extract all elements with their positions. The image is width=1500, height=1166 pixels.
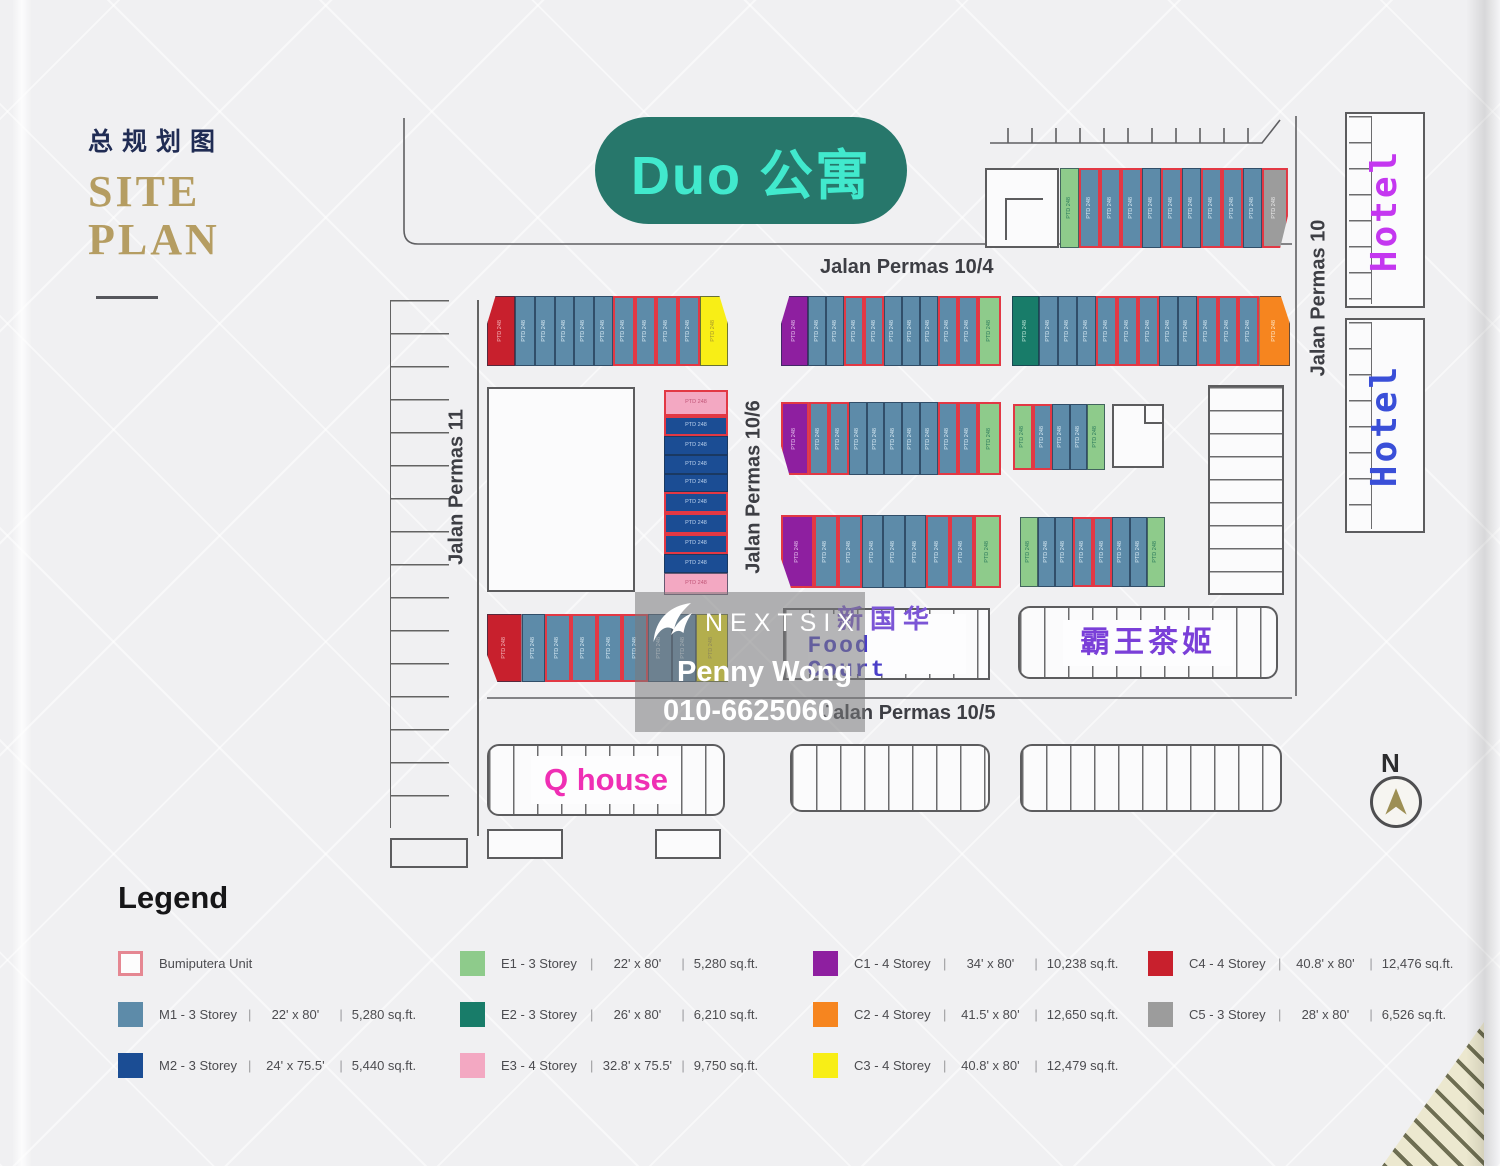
lot-ptd-label: PTD 248 bbox=[1093, 426, 1099, 448]
lot-M1-bumiputera: PTD 248 bbox=[1218, 296, 1239, 366]
legend-swatch-c4 bbox=[1148, 951, 1173, 976]
lot-ptd-label: PTD 248 bbox=[870, 541, 876, 563]
lot-ptd-label: PTD 248 bbox=[1065, 320, 1071, 342]
lot-ptd-label: PTD 248 bbox=[1076, 426, 1082, 448]
lot-ptd-label: PTD 248 bbox=[685, 581, 707, 587]
legend-item-bumi: Bumiputera Unit bbox=[118, 950, 416, 977]
legend-label: C5 - 3 Storey bbox=[1189, 1007, 1269, 1022]
lot-M1-bumiputera: PTD 248 bbox=[838, 515, 862, 588]
lot-block-col-10-6: PTD 248PTD 248PTD 248PTD 248PTD 248PTD 2… bbox=[664, 390, 728, 595]
lot-ptd-label: PTD 248 bbox=[581, 637, 587, 659]
lot-M1-bumiputera: PTD 248 bbox=[1161, 168, 1182, 248]
lot-ptd-label: PTD 248 bbox=[1040, 426, 1046, 448]
lot-ptd-label: PTD 248 bbox=[1080, 541, 1086, 563]
legend-size: 24' x 75.5' bbox=[260, 1058, 330, 1073]
lot-E1: PTD 248 bbox=[1087, 404, 1105, 470]
legend-item-e2: E2 - 3 Storey|26' x 80'|6,210 sq.ft. bbox=[460, 1001, 758, 1028]
legend-label: C2 - 4 Storey bbox=[854, 1007, 934, 1022]
lot-M1: PTD 248 bbox=[1159, 296, 1178, 366]
parking-structure bbox=[1208, 385, 1284, 595]
hotel-building-bottom: Hotel bbox=[1345, 318, 1425, 533]
legend-size: 22' x 80' bbox=[602, 956, 672, 971]
legend-separator: | bbox=[943, 1058, 946, 1073]
lot-M1: PTD 248 bbox=[883, 515, 905, 588]
legend-label: M1 - 3 Storey bbox=[159, 1007, 239, 1022]
legend-area: 12,476 sq.ft. bbox=[1382, 956, 1454, 971]
lot-ptd-label: PTD 248 bbox=[685, 423, 707, 429]
legend-separator: | bbox=[943, 956, 946, 971]
lot-ptd-label: PTD 248 bbox=[891, 428, 897, 450]
legend-item-m1: M1 - 3 Storey|22' x 80'|5,280 sq.ft. bbox=[118, 1001, 416, 1028]
tea-shop-name: 霸王茶姬 bbox=[1080, 627, 1216, 659]
legend-separator: | bbox=[681, 956, 684, 971]
legend-area: 6,210 sq.ft. bbox=[694, 1007, 758, 1022]
legend-heading: Legend bbox=[118, 880, 228, 916]
lot-M1: PTD 248 bbox=[902, 296, 920, 366]
legend-separator: | bbox=[590, 1058, 593, 1073]
lot-M1: PTD 248 bbox=[1052, 404, 1070, 470]
watermark-phone: 010-6625060 bbox=[663, 695, 865, 728]
compass-icon bbox=[1370, 776, 1422, 828]
lot-ptd-label: PTD 248 bbox=[1166, 320, 1172, 342]
lot-C3: PTD 248 bbox=[700, 296, 728, 366]
lot-ptd-label: PTD 248 bbox=[581, 320, 587, 342]
legend-swatch-m2 bbox=[118, 1053, 143, 1078]
legend-column-4: C4 - 4 Storey|40.8' x 80'|12,476 sq.ft.C… bbox=[1148, 950, 1453, 1028]
legend-label: E3 - 4 Storey bbox=[501, 1058, 581, 1073]
hotel-building-top: Hotel bbox=[1345, 112, 1425, 308]
lot-ptd-label: PTD 248 bbox=[1189, 197, 1195, 219]
q-house-building: Q house bbox=[487, 744, 725, 816]
lot-ptd-label: PTD 248 bbox=[908, 428, 914, 450]
watermark-agent-name: Penny Wong bbox=[677, 656, 865, 689]
legend-separator: | bbox=[590, 956, 593, 971]
legend-separator: | bbox=[248, 1058, 251, 1073]
lot-ptd-label: PTD 248 bbox=[1104, 320, 1110, 342]
legend-label: E2 - 3 Storey bbox=[501, 1007, 581, 1022]
lot-ptd-label: PTD 248 bbox=[1044, 541, 1050, 563]
lot-ptd-label: PTD 248 bbox=[926, 320, 932, 342]
lot-M1-bumiputera: PTD 248 bbox=[864, 296, 884, 366]
legend-size: 26' x 80' bbox=[602, 1007, 672, 1022]
lot-M1: PTD 248 bbox=[1055, 517, 1073, 587]
parking-stalls-jalan-permas-11 bbox=[390, 300, 449, 828]
lot-M1-bumiputera: PTD 248 bbox=[613, 296, 635, 366]
lot-M1: PTD 248 bbox=[1112, 517, 1130, 587]
site-plan-canvas: 总规划图 SITE PLAN Duo 公寓 新国华 Food Court 霸王茶… bbox=[0, 0, 1500, 1166]
hotel-bottom-label: Hotel bbox=[1365, 364, 1406, 487]
corner-building-ne-notch bbox=[1005, 198, 1043, 240]
legend-swatch-e1 bbox=[460, 951, 485, 976]
lot-block-row-10-4-west: PTD 248PTD 248PTD 248PTD 248PTD 248PTD 2… bbox=[487, 296, 728, 366]
lot-ptd-label: PTD 248 bbox=[686, 320, 692, 342]
legend-column-3: C1 - 4 Storey|34' x 80'|10,238 sq.ft.C2 … bbox=[813, 950, 1118, 1079]
lot-ptd-label: PTD 248 bbox=[1129, 197, 1135, 219]
lot-M1-bumiputera: PTD 248 bbox=[1138, 296, 1159, 366]
lot-M1: PTD 248 bbox=[1058, 296, 1077, 366]
lot-M1: PTD 248 bbox=[867, 402, 885, 475]
lot-M1: PTD 248 bbox=[535, 296, 555, 366]
lot-C4: PTD 248 bbox=[487, 296, 515, 366]
legend-item-c2: C2 - 4 Storey|41.5' x 80'|12,650 sq.ft. bbox=[813, 1001, 1118, 1028]
legend-area: 10,238 sq.ft. bbox=[1047, 956, 1119, 971]
legend-area: 12,479 sq.ft. bbox=[1047, 1058, 1119, 1073]
legend-separator: | bbox=[681, 1007, 684, 1022]
lot-M1: PTD 248 bbox=[920, 296, 938, 366]
lot-M1-bumiputera: PTD 248 bbox=[950, 515, 974, 588]
lot-M1: PTD 248 bbox=[884, 296, 902, 366]
lot-ptd-label: PTD 248 bbox=[542, 320, 548, 342]
legend-separator: | bbox=[1034, 1007, 1037, 1022]
lot-M1-bumiputera: PTD 248 bbox=[1073, 517, 1093, 587]
lot-ptd-label: PTD 248 bbox=[965, 428, 971, 450]
nextsix-logo-icon bbox=[645, 598, 697, 648]
lot-M1-bumiputera: PTD 248 bbox=[958, 402, 978, 475]
lot-ptd-label: PTD 248 bbox=[945, 320, 951, 342]
corner-building-ne bbox=[985, 168, 1059, 248]
lot-ptd-label: PTD 248 bbox=[643, 320, 649, 342]
q-house-annex-east bbox=[655, 829, 721, 859]
legend-separator: | bbox=[681, 1058, 684, 1073]
lot-M1: PTD 248 bbox=[1039, 296, 1058, 366]
lot-M1: PTD 248 bbox=[1130, 517, 1148, 587]
small-outbuilding-sw bbox=[390, 838, 468, 868]
legend-size: 40.8' x 80' bbox=[955, 1058, 1025, 1073]
lot-ptd-label: PTD 248 bbox=[836, 428, 842, 450]
lot-M1-bumiputera: PTD 248 bbox=[597, 614, 623, 682]
legend-item-e3: E3 - 4 Storey|32.8' x 75.5'|9,750 sq.ft. bbox=[460, 1052, 758, 1079]
lot-block-row-10-4-east: PTD 248PTD 248PTD 248PTD 248PTD 248PTD 2… bbox=[1012, 296, 1290, 366]
compass-north-label: N bbox=[1381, 748, 1400, 779]
compass-arrow-icon bbox=[1382, 787, 1410, 817]
agent-watermark: NEXTSIX Penny Wong 010-6625060 bbox=[635, 592, 865, 732]
lot-C1-bumiputera: PTD 248 bbox=[781, 402, 809, 475]
lot-E2: PTD 248 bbox=[1012, 296, 1039, 366]
lot-M1: PTD 248 bbox=[555, 296, 575, 366]
q-house-name: Q house bbox=[544, 764, 668, 797]
lot-M1-bumiputera: PTD 248 bbox=[844, 296, 864, 366]
lot-M2-bumiputera: PTD 248 bbox=[664, 513, 728, 534]
page-title-english: SITE PLAN bbox=[88, 168, 220, 263]
tea-shop-building: 霸王茶姬 bbox=[1018, 606, 1278, 679]
title-line-site: SITE bbox=[88, 168, 220, 216]
legend-item-c5: C5 - 3 Storey|28' x 80'|6,526 sq.ft. bbox=[1148, 1001, 1453, 1028]
lot-E1: PTD 248 bbox=[1060, 168, 1079, 248]
lot-ptd-label: PTD 248 bbox=[685, 500, 707, 506]
lot-M1: PTD 248 bbox=[920, 402, 938, 475]
lot-M1-bumiputera: PTD 248 bbox=[1238, 296, 1259, 366]
lot-block-row-mid-small: PTD 248PTD 248PTD 248PTD 248PTD 248 bbox=[1013, 404, 1105, 470]
lot-E1: PTD 248 bbox=[1147, 517, 1165, 587]
legend-swatch-bumi bbox=[118, 951, 143, 976]
lot-ptd-label: PTD 248 bbox=[1108, 197, 1114, 219]
lot-M1: PTD 248 bbox=[515, 296, 535, 366]
lot-M1: PTD 248 bbox=[1038, 517, 1056, 587]
lot-M1: PTD 248 bbox=[808, 296, 826, 366]
road-label-jalan-permas-10-4: Jalan Permas 10/4 bbox=[820, 256, 993, 279]
lot-M1-bumiputera: PTD 248 bbox=[1201, 168, 1222, 248]
lot-ptd-label: PTD 248 bbox=[685, 480, 707, 486]
road-edge-jalan-permas-11 bbox=[477, 300, 479, 836]
south-building-mid bbox=[790, 744, 990, 812]
lot-ptd-label: PTD 248 bbox=[965, 320, 971, 342]
lot-E1-bumiputera: PTD 248 bbox=[1013, 404, 1033, 470]
legend-item-c3: C3 - 4 Storey|40.8' x 80'|12,479 sq.ft. bbox=[813, 1052, 1118, 1079]
lot-M1-bumiputera: PTD 248 bbox=[1121, 168, 1142, 248]
lot-M1-bumiputera: PTD 248 bbox=[958, 296, 978, 366]
lot-E1-bumiputera: PTD 248 bbox=[978, 296, 1001, 366]
legend-swatch-c5 bbox=[1148, 1002, 1173, 1027]
legend-separator: | bbox=[1369, 956, 1372, 971]
lot-ptd-label: PTD 248 bbox=[685, 400, 707, 406]
legend-size: 28' x 80' bbox=[1290, 1007, 1360, 1022]
lot-C5-bumiputera: PTD 248 bbox=[1262, 168, 1288, 248]
legend-item-c1: C1 - 4 Storey|34' x 80'|10,238 sq.ft. bbox=[813, 950, 1118, 977]
legend-item-m2: M2 - 3 Storey|24' x 75.5'|5,440 sq.ft. bbox=[118, 1052, 416, 1079]
road-label-jalan-permas-10-6: Jalan Permas 10/6 bbox=[743, 400, 766, 573]
legend-size: 32.8' x 75.5' bbox=[602, 1058, 672, 1073]
lot-ptd-label: PTD 248 bbox=[1118, 541, 1124, 563]
lot-M1-bumiputera: PTD 248 bbox=[1197, 296, 1218, 366]
lot-M1-bumiputera: PTD 248 bbox=[926, 515, 950, 588]
road-label-jalan-permas-10: Jalan Permas 10 bbox=[1308, 220, 1331, 377]
lot-ptd-label: PTD 248 bbox=[522, 320, 528, 342]
lot-ptd-label: PTD 248 bbox=[1046, 320, 1052, 342]
lot-ptd-label: PTD 248 bbox=[792, 428, 798, 450]
lot-ptd-label: PTD 248 bbox=[1087, 197, 1093, 219]
right-edge-shading bbox=[1466, 0, 1500, 1166]
lot-ptd-label: PTD 248 bbox=[1246, 320, 1252, 342]
lot-M1: PTD 248 bbox=[1142, 168, 1161, 248]
legend-item-c4: C4 - 4 Storey|40.8' x 80'|12,476 sq.ft. bbox=[1148, 950, 1453, 977]
lot-ptd-label: PTD 248 bbox=[562, 320, 568, 342]
small-building-mid bbox=[1112, 404, 1164, 468]
lot-ptd-label: PTD 248 bbox=[873, 428, 879, 450]
lot-ptd-label: PTD 248 bbox=[685, 462, 707, 468]
legend-separator: | bbox=[1034, 1058, 1037, 1073]
lot-ptd-label: PTD 248 bbox=[987, 428, 993, 450]
tea-shop-sign: 霸王茶姬 bbox=[1063, 620, 1233, 666]
legend-label: M2 - 3 Storey bbox=[159, 1058, 239, 1073]
lot-block-row-lower-east: PTD 248PTD 248PTD 248PTD 248PTD 248PTD 2… bbox=[1020, 517, 1165, 587]
lot-ptd-label: PTD 248 bbox=[815, 320, 821, 342]
lot-M2: PTD 248 bbox=[664, 455, 728, 474]
lot-ptd-label: PTD 248 bbox=[1026, 541, 1032, 563]
lot-ptd-label: PTD 248 bbox=[498, 320, 504, 342]
lot-M1-bumiputera: PTD 248 bbox=[814, 515, 838, 588]
lot-ptd-label: PTD 248 bbox=[891, 541, 897, 563]
watermark-brand-row: NEXTSIX bbox=[645, 598, 865, 648]
q-house-sign: Q house bbox=[531, 756, 681, 804]
small-building-mid-notch bbox=[1144, 404, 1164, 424]
lot-ptd-label: PTD 248 bbox=[1204, 320, 1210, 342]
legend-label: C1 - 4 Storey bbox=[854, 956, 934, 971]
legend-label: C4 - 4 Storey bbox=[1189, 956, 1269, 971]
lot-ptd-label: PTD 248 bbox=[711, 320, 717, 342]
lot-ptd-label: PTD 248 bbox=[872, 320, 878, 342]
lot-ptd-label: PTD 248 bbox=[1169, 197, 1175, 219]
lot-M1: PTD 248 bbox=[574, 296, 594, 366]
lot-M1: PTD 248 bbox=[905, 515, 927, 588]
legend-swatch-c1 bbox=[813, 951, 838, 976]
lot-E3-bumiputera: PTD 248 bbox=[664, 390, 728, 416]
lot-M1: PTD 248 bbox=[1243, 168, 1262, 248]
lot-ptd-label: PTD 248 bbox=[945, 428, 951, 450]
lot-C4: PTD 248 bbox=[487, 614, 522, 682]
lot-ptd-label: PTD 248 bbox=[685, 541, 707, 547]
lot-M1-bumiputera: PTD 248 bbox=[571, 614, 597, 682]
lot-M1: PTD 248 bbox=[522, 614, 546, 682]
lot-M1-bumiputera: PTD 248 bbox=[1033, 404, 1053, 470]
lot-ptd-label: PTD 248 bbox=[913, 541, 919, 563]
legend-separator: | bbox=[1278, 956, 1281, 971]
lot-M1-bumiputera: PTD 248 bbox=[829, 402, 849, 475]
lot-M1-bumiputera: PTD 248 bbox=[1093, 517, 1113, 587]
lot-C1-bumiputera: PTD 248 bbox=[781, 515, 814, 588]
lot-E1-bumiputera: PTD 248 bbox=[974, 515, 1002, 588]
lot-ptd-label: PTD 248 bbox=[1023, 320, 1029, 342]
legend-swatch-c2 bbox=[813, 1002, 838, 1027]
legend-size: 34' x 80' bbox=[955, 956, 1025, 971]
lot-M1-bumiputera: PTD 248 bbox=[678, 296, 700, 366]
legend-area: 5,280 sq.ft. bbox=[694, 956, 758, 971]
lot-ptd-label: PTD 248 bbox=[1067, 197, 1073, 219]
lot-block-row-10-4-mid: PTD 248PTD 248PTD 248PTD 248PTD 248PTD 2… bbox=[781, 296, 1001, 366]
lot-M1-bumiputera: PTD 248 bbox=[656, 296, 678, 366]
lot-ptd-label: PTD 248 bbox=[1250, 197, 1256, 219]
legend-separator: | bbox=[339, 1007, 342, 1022]
lot-M1-bumiputera: PTD 248 bbox=[1222, 168, 1243, 248]
lot-ptd-label: PTD 248 bbox=[1149, 197, 1155, 219]
lot-ptd-label: PTD 248 bbox=[1225, 320, 1231, 342]
lot-M2: PTD 248 bbox=[664, 436, 728, 455]
lot-M2-bumiputera: PTD 248 bbox=[664, 534, 728, 555]
lot-M1-bumiputera: PTD 248 bbox=[1079, 168, 1100, 248]
lot-ptd-label: PTD 248 bbox=[926, 428, 932, 450]
lot-M2-bumiputera: PTD 248 bbox=[664, 416, 728, 437]
legend-separator: | bbox=[1034, 956, 1037, 971]
lot-M1: PTD 248 bbox=[902, 402, 920, 475]
lot-M1: PTD 248 bbox=[862, 515, 884, 588]
lot-ptd-label: PTD 248 bbox=[1061, 541, 1067, 563]
lot-ptd-label: PTD 248 bbox=[1100, 541, 1106, 563]
lot-block-row-lower-west: PTD 248PTD 248PTD 248PTD 248PTD 248PTD 2… bbox=[781, 515, 1001, 588]
lot-M1-bumiputera: PTD 248 bbox=[1117, 296, 1138, 366]
legend-separator: | bbox=[248, 1007, 251, 1022]
lot-M1-bumiputera: PTD 248 bbox=[1100, 168, 1121, 248]
lot-ptd-label: PTD 248 bbox=[1230, 197, 1236, 219]
lot-C2: PTD 248 bbox=[1259, 296, 1290, 366]
page-title-chinese: 总规划图 bbox=[88, 122, 224, 158]
lot-ptd-label: PTD 248 bbox=[1136, 541, 1142, 563]
lot-M1: PTD 248 bbox=[826, 296, 844, 366]
lot-ptd-label: PTD 248 bbox=[685, 521, 707, 527]
lot-ptd-label: PTD 248 bbox=[664, 320, 670, 342]
left-edge-highlight bbox=[12, 0, 32, 1166]
hotel-top-label: Hotel bbox=[1365, 148, 1406, 271]
lot-M2: PTD 248 bbox=[664, 554, 728, 573]
legend-area: 6,526 sq.ft. bbox=[1382, 1007, 1446, 1022]
south-building-east bbox=[1020, 744, 1282, 812]
legend-separator: | bbox=[943, 1007, 946, 1022]
title-divider bbox=[96, 296, 158, 299]
legend-separator: | bbox=[1278, 1007, 1281, 1022]
lot-ptd-label: PTD 248 bbox=[601, 320, 607, 342]
lot-ptd-label: PTD 248 bbox=[555, 637, 561, 659]
lot-ptd-label: PTD 248 bbox=[987, 320, 993, 342]
legend-area: 12,650 sq.ft. bbox=[1047, 1007, 1119, 1022]
lot-ptd-label: PTD 248 bbox=[1020, 426, 1026, 448]
lot-M1: PTD 248 bbox=[1070, 404, 1088, 470]
legend-size: 22' x 80' bbox=[260, 1007, 330, 1022]
legend-swatch-e3 bbox=[460, 1053, 485, 1078]
large-open-block bbox=[487, 387, 635, 592]
lot-M1: PTD 248 bbox=[1178, 296, 1197, 366]
lot-E1-bumiputera: PTD 248 bbox=[978, 402, 1001, 475]
legend-separator: | bbox=[339, 1058, 342, 1073]
lot-M1: PTD 248 bbox=[594, 296, 614, 366]
lot-ptd-label: PTD 248 bbox=[823, 541, 829, 563]
lot-block-north-east-row: PTD 248PTD 248PTD 248PTD 248PTD 248PTD 2… bbox=[1060, 168, 1288, 248]
lot-ptd-label: PTD 248 bbox=[985, 541, 991, 563]
legend-separator: | bbox=[590, 1007, 593, 1022]
lot-ptd-label: PTD 248 bbox=[959, 541, 965, 563]
road-label-jalan-permas-11: Jalan Permas 11 bbox=[446, 409, 469, 565]
lot-M1: PTD 248 bbox=[884, 402, 902, 475]
q-house-annex-west bbox=[487, 829, 563, 859]
lot-block-row-mid-west: PTD 248PTD 248PTD 248PTD 248PTD 248PTD 2… bbox=[781, 402, 1001, 475]
lot-ptd-label: PTD 248 bbox=[1209, 197, 1215, 219]
lot-ptd-label: PTD 248 bbox=[833, 320, 839, 342]
lot-ptd-label: PTD 248 bbox=[792, 320, 798, 342]
legend-swatch-c3 bbox=[813, 1053, 838, 1078]
lot-ptd-label: PTD 248 bbox=[685, 443, 707, 449]
title-line-plan: PLAN bbox=[88, 216, 220, 264]
lot-M1-bumiputera: PTD 248 bbox=[1096, 296, 1117, 366]
legend-area: 5,440 sq.ft. bbox=[352, 1058, 416, 1073]
legend-area: 9,750 sq.ft. bbox=[694, 1058, 758, 1073]
lot-M1-bumiputera: PTD 248 bbox=[809, 402, 829, 475]
legend-column-2: E1 - 3 Storey|22' x 80'|5,280 sq.ft.E2 -… bbox=[460, 950, 758, 1079]
lot-ptd-label: PTD 248 bbox=[1272, 197, 1278, 219]
lot-ptd-label: PTD 248 bbox=[1125, 320, 1131, 342]
lot-M1-bumiputera: PTD 248 bbox=[545, 614, 571, 682]
legend-item-e1: E1 - 3 Storey|22' x 80'|5,280 sq.ft. bbox=[460, 950, 758, 977]
lot-ptd-label: PTD 248 bbox=[1084, 320, 1090, 342]
lot-ptd-label: PTD 248 bbox=[502, 637, 508, 659]
legend-area: 5,280 sq.ft. bbox=[352, 1007, 416, 1022]
lot-ptd-label: PTD 248 bbox=[935, 541, 941, 563]
lot-M1: PTD 248 bbox=[1077, 296, 1096, 366]
lot-M1-bumiputera: PTD 248 bbox=[938, 402, 958, 475]
legend-swatch-e2 bbox=[460, 1002, 485, 1027]
legend-label: E1 - 3 Storey bbox=[501, 956, 581, 971]
lot-M1: PTD 248 bbox=[1182, 168, 1201, 248]
lot-ptd-label: PTD 248 bbox=[855, 428, 861, 450]
lot-ptd-label: PTD 248 bbox=[1184, 320, 1190, 342]
lot-ptd-label: PTD 248 bbox=[795, 541, 801, 563]
lot-ptd-label: PTD 248 bbox=[685, 561, 707, 567]
lot-ptd-label: PTD 248 bbox=[852, 320, 858, 342]
legend-size: 41.5' x 80' bbox=[955, 1007, 1025, 1022]
lot-C1: PTD 248 bbox=[781, 296, 808, 366]
legend-column-1: Bumiputera UnitM1 - 3 Storey|22' x 80'|5… bbox=[118, 950, 416, 1079]
legend-label: Bumiputera Unit bbox=[159, 956, 252, 971]
legend-separator: | bbox=[1369, 1007, 1372, 1022]
lot-ptd-label: PTD 248 bbox=[531, 637, 537, 659]
lot-ptd-label: PTD 248 bbox=[890, 320, 896, 342]
lot-E1: PTD 248 bbox=[1020, 517, 1038, 587]
